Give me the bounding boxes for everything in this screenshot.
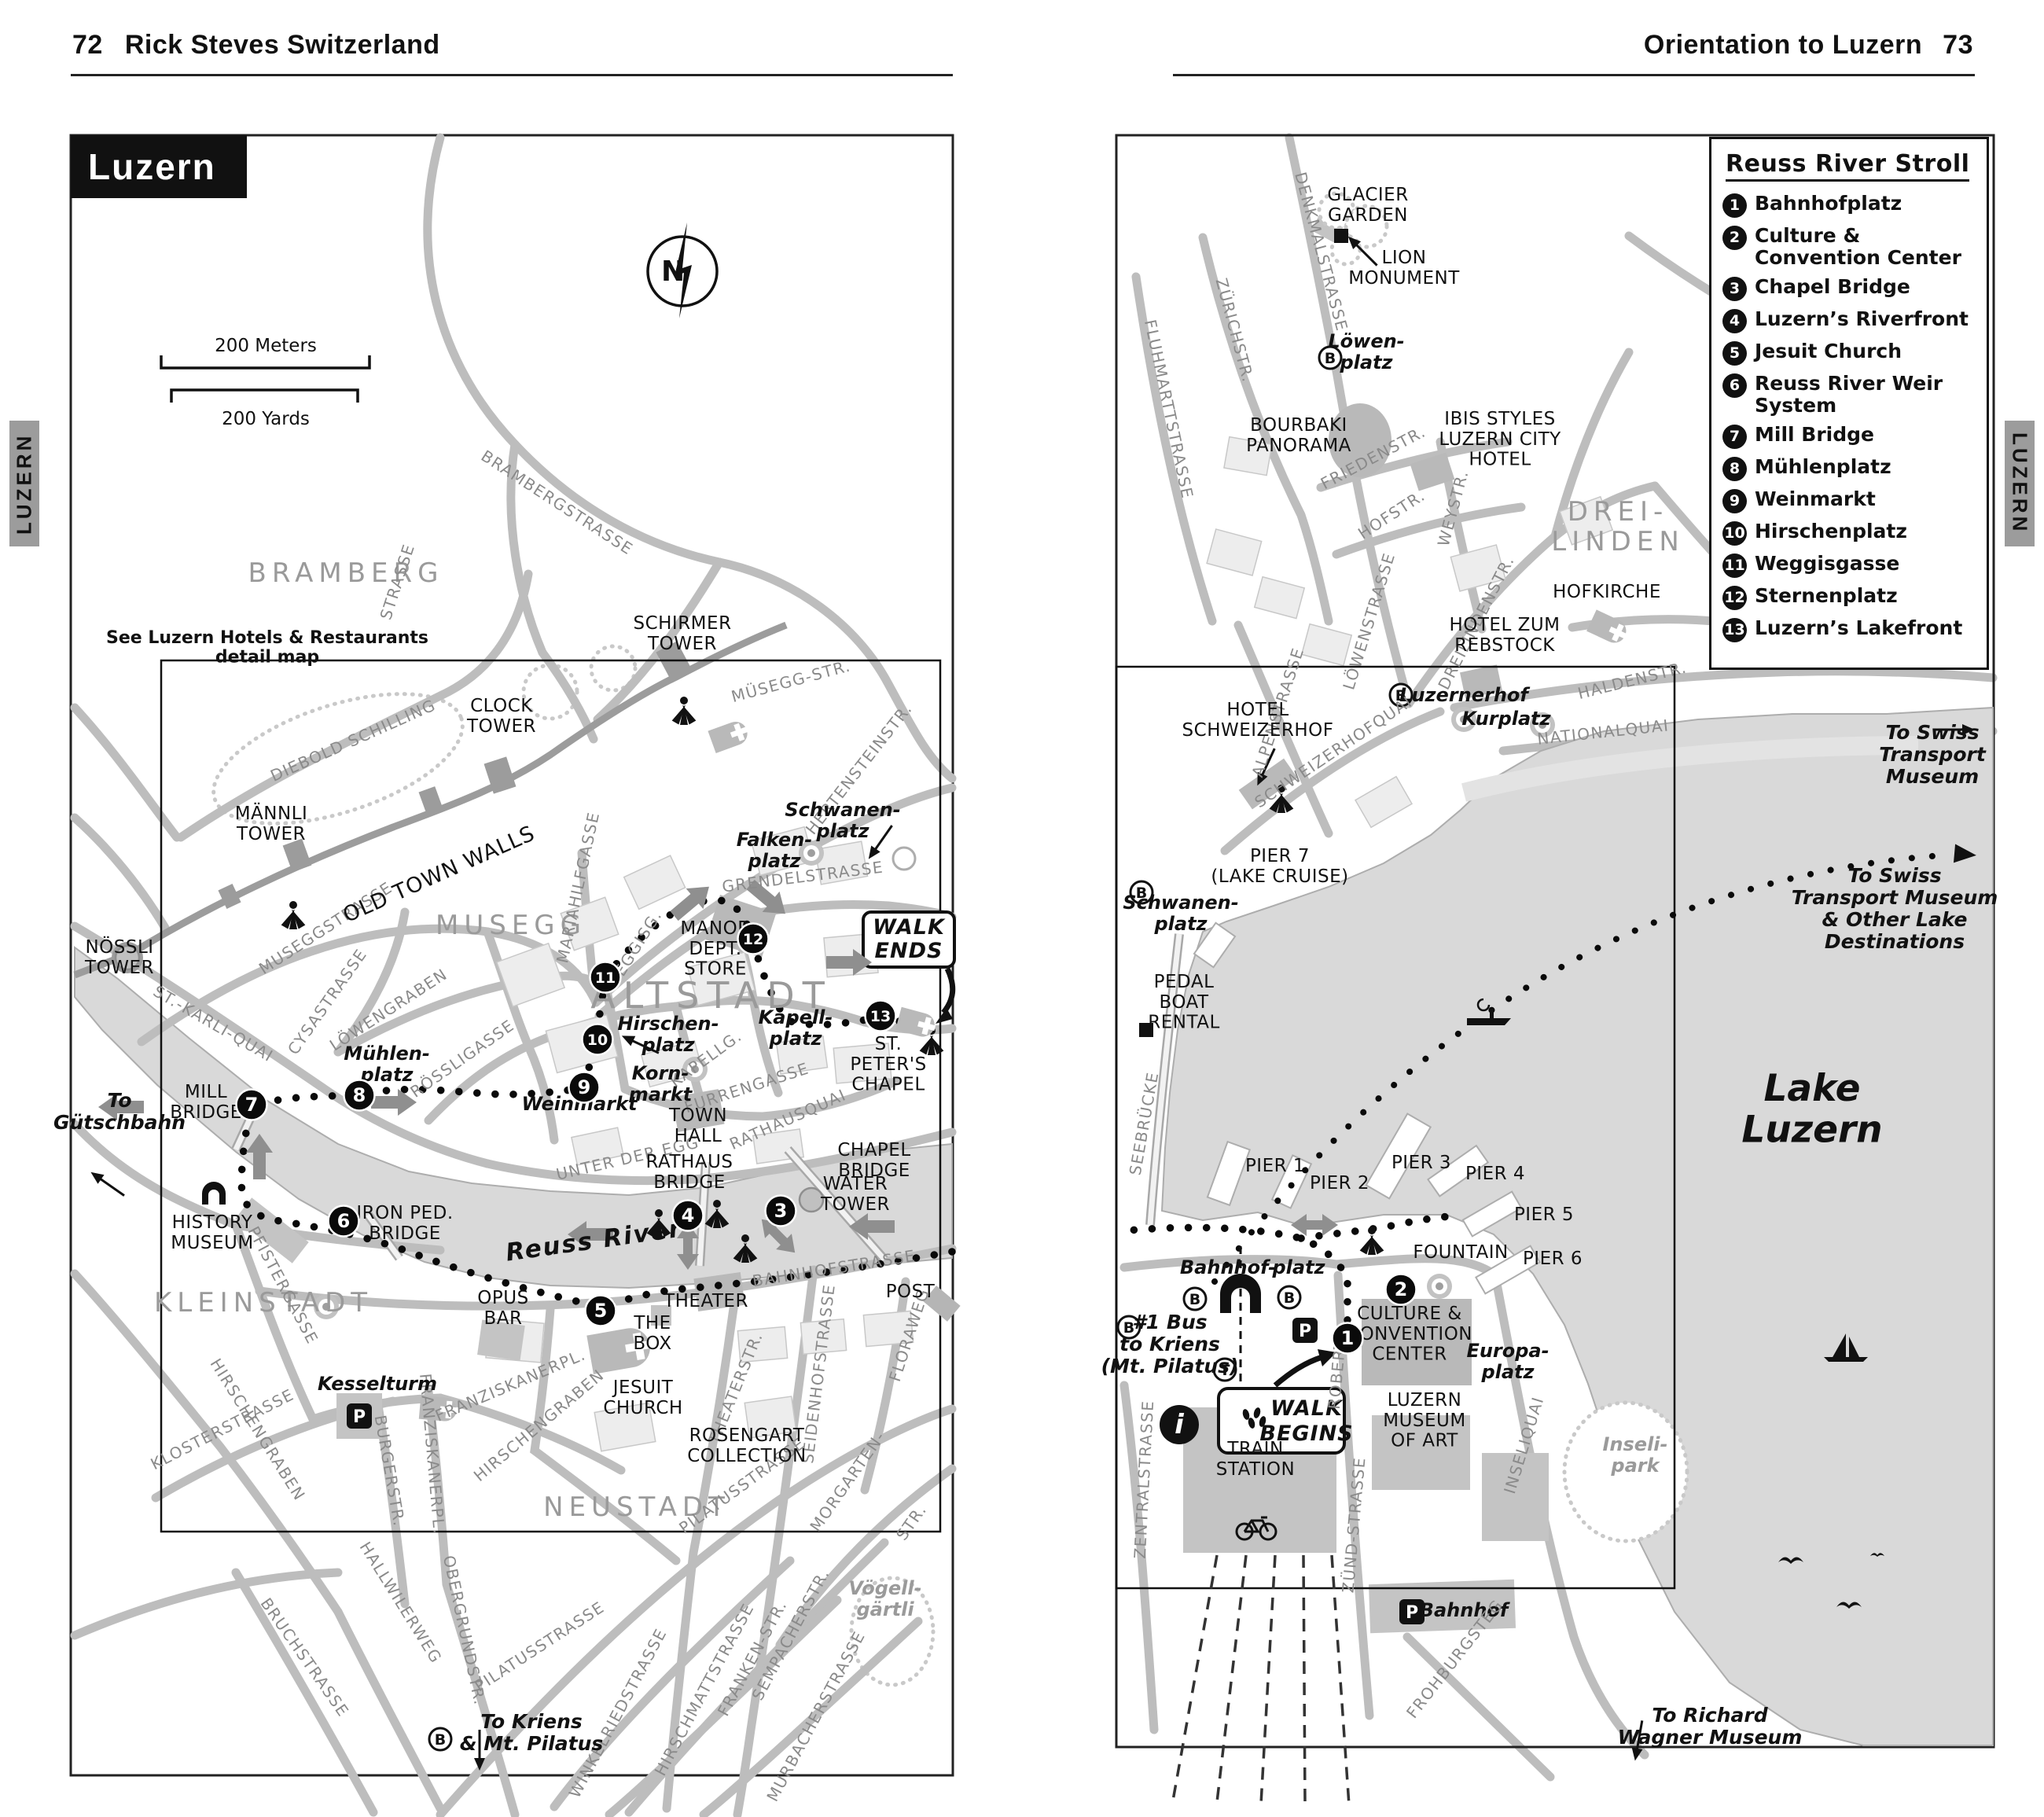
map-label: Inseli-park (1603, 1433, 1668, 1477)
legend-item: 10Hirschenplatz (1722, 520, 1979, 546)
map-label: NÖSSLITOWER (84, 936, 154, 978)
arch-icon (202, 1182, 226, 1205)
legend-item-label: Mill Bridge (1755, 424, 1874, 446)
svg-text:7: 7 (245, 1094, 259, 1116)
svg-text:2: 2 (1395, 1278, 1408, 1300)
scale-meters: 200 Meters (215, 336, 317, 356)
svg-text:B: B (1189, 1291, 1200, 1308)
legend-item-label: Weinmarkt (1755, 488, 1876, 510)
map-label: KLEINSTADT (154, 1287, 373, 1319)
legend-item: 9Weinmarkt (1722, 488, 1979, 513)
sarr-icon (87, 1168, 127, 1200)
map-label: MÜSEGG-STR. (730, 656, 853, 706)
legend-item-number: 5 (1722, 341, 1747, 366)
legend-item-number: 3 (1722, 277, 1747, 301)
map-label: POST (886, 1282, 936, 1302)
bus-stop-icon: B (429, 1728, 451, 1750)
tower-circle-icon (800, 1188, 823, 1212)
legend-item-number: 6 (1722, 373, 1747, 398)
legend-item-label: Luzern’s Riverfront (1755, 308, 1969, 330)
legend-panel: Reuss River Stroll 1Bahnhofplatz2Culture… (1709, 137, 1989, 670)
route-stop: 3 (766, 1196, 796, 1227)
map-label: CLOCKTOWER (466, 696, 536, 737)
parking-icon: P (1292, 1318, 1318, 1343)
svg-text:6: 6 (337, 1210, 351, 1232)
svg-text:9: 9 (578, 1076, 591, 1098)
viewpoint-icon (672, 697, 697, 725)
map-label: To Kriens& Mt. Pilatus (460, 1710, 604, 1755)
legend-item-label: Reuss River Weir System (1755, 373, 1979, 417)
map-label: Kapell-platz (759, 1006, 833, 1050)
walk-ends-line2: ENDS (875, 939, 943, 963)
map-label: ToGütschbahn (53, 1089, 186, 1134)
square-icon (1334, 229, 1348, 243)
map-label: ZÜND-STRASSE (1339, 1456, 1369, 1594)
route-stop: 7 (237, 1090, 267, 1120)
route-stop: 4 (673, 1201, 704, 1231)
map-label: Löwen-platz (1328, 330, 1404, 373)
info-icon: i (1160, 1405, 1199, 1444)
map-label: ZÜRICHSTR. (1211, 276, 1258, 384)
map-label: To SwissTransportMuseum (1879, 721, 1987, 788)
map-label: TRAINSTATION (1216, 1439, 1295, 1480)
route-stop: 6 (329, 1206, 359, 1237)
legend-item: 13Luzern’s Lakefront (1722, 617, 1979, 642)
map-label: IBIS STYLESLUZERN CITYHOTEL (1439, 409, 1561, 470)
map-title: Luzern (88, 146, 216, 187)
svg-text:i: i (1175, 1409, 1185, 1440)
legend-item-number: 4 (1722, 309, 1747, 333)
map-label: WATERTOWER (820, 1174, 890, 1215)
map-label: RATHAUSBRIDGE (645, 1152, 733, 1193)
map-label: PIER 4 (1465, 1164, 1525, 1184)
svg-text:12: 12 (743, 931, 763, 948)
legend-item-number: 11 (1722, 554, 1747, 578)
svg-text:8: 8 (353, 1084, 366, 1106)
map-label: PILATUSSTRASSE (471, 1598, 608, 1696)
map-label: ROSENGARTCOLLECTION (687, 1425, 807, 1466)
legend-title: Reuss River Stroll (1726, 150, 1969, 182)
legend-item-number: 10 (1722, 521, 1747, 546)
legend-item: 7Mill Bridge (1722, 424, 1979, 449)
legend-item-label: Luzern’s Lakefront (1755, 617, 1962, 639)
legend-item: 12Sternenplatz (1722, 585, 1979, 610)
route-stop: 5 (586, 1296, 616, 1326)
old-town-wall (75, 625, 786, 975)
map-label: THEATER (663, 1291, 748, 1311)
svg-text:4: 4 (682, 1205, 695, 1227)
map-label: ZENTRALSTRASSE (1130, 1400, 1158, 1559)
map-label: Luzernerhof (1399, 684, 1530, 706)
map-label: SCHIRMERTOWER (633, 613, 731, 654)
map-label: MÄNNLITOWER (235, 802, 308, 844)
parking-icon: P (347, 1403, 372, 1429)
route-stop: 10 (583, 1024, 613, 1055)
map-label: Bahnhof- (1180, 1256, 1276, 1278)
legend-item-number: 2 (1722, 226, 1747, 250)
viewpoint-icon (281, 901, 306, 929)
map-label: Europa-platz (1466, 1340, 1549, 1383)
map-label: BRAMBERG (248, 557, 444, 589)
map-label: BRAMBERGSTRASSE (478, 447, 637, 559)
svg-text:11: 11 (595, 969, 616, 987)
route-stop: 11 (590, 962, 621, 993)
map-label: PIER 5 (1514, 1205, 1574, 1225)
legend-item-label: Culture & Convention Center (1755, 225, 1979, 269)
svg-text:B: B (435, 1731, 446, 1749)
map-label: MANORDEPT.STORE (680, 918, 750, 980)
svg-text:P: P (353, 1407, 366, 1427)
legend-item-label: Hirschenplatz (1755, 520, 1907, 543)
walk-ends-line1: WALK (873, 915, 946, 940)
legend-list: 1Bahnhofplatz2Culture & Convention Cente… (1722, 193, 1979, 642)
svg-text:3: 3 (774, 1200, 788, 1222)
church-icon (1586, 609, 1630, 646)
map-label: BURGERSTR. (371, 1414, 410, 1528)
legend-item-label: Jesuit Church (1755, 340, 1902, 362)
map-title-box: Luzern (71, 135, 247, 198)
legend-item-number: 9 (1722, 489, 1747, 513)
legend-item: 11Weggisgasse (1722, 553, 1979, 578)
compass-north: N (661, 256, 685, 288)
map-label: PIER 7(LAKE CRUISE) (1211, 846, 1348, 887)
legend-item-label: Sternenplatz (1755, 585, 1898, 607)
legend-item-number: 8 (1722, 457, 1747, 481)
map-label: OPUSBAR (477, 1288, 528, 1329)
route-stop: 12 (738, 924, 769, 954)
legend-item-label: Weggisgasse (1755, 553, 1899, 575)
route-stop: 2 (1386, 1274, 1417, 1305)
legend-item-number: 12 (1722, 586, 1747, 610)
legend-item: 4Luzern’s Riverfront (1722, 308, 1979, 333)
map-label: PIER 1 (1245, 1156, 1305, 1176)
railway-tracks (1173, 1555, 1349, 1805)
legend-item-label: Mühlenplatz (1755, 456, 1891, 478)
route-stop: 8 (344, 1080, 375, 1111)
svg-text:P: P (1406, 1603, 1418, 1623)
circle-plain-icon (893, 848, 915, 870)
viewpoint-icon (1360, 1227, 1384, 1255)
map-label: DREI-LINDEN (1551, 496, 1685, 557)
route-stop: 9 (569, 1072, 600, 1103)
map-label: LUZERNMUSEUMOF ART (1383, 1390, 1466, 1451)
scale-yards: 200 Yards (222, 409, 310, 429)
scale-bar: 200 Meters 200 Yards (161, 336, 369, 429)
map-label: platz (1271, 1256, 1325, 1278)
map-label: BOURBAKIPANORAMA (1246, 415, 1351, 456)
svg-text:P: P (1299, 1322, 1311, 1341)
map-label: PIER 3 (1391, 1153, 1451, 1173)
map-label: HOTELSCHWEIZERHOF (1182, 700, 1334, 741)
map-label: Korn-markt (629, 1062, 693, 1105)
legend-item-label: Chapel Bridge (1755, 276, 1910, 298)
svg-text:B: B (1284, 1289, 1295, 1307)
legend-item: 2Culture & Convention Center (1722, 225, 1979, 269)
compass-rose: N (648, 223, 717, 318)
map-label: IRON PED.BRIDGE (356, 1203, 453, 1244)
route-stop: 13 (866, 1001, 896, 1032)
map-label: TOWNHALL (668, 1105, 727, 1146)
svg-text:5: 5 (594, 1300, 608, 1322)
map-label: HISTORYMUSEUM (171, 1212, 254, 1253)
svg-text:1: 1 (1341, 1327, 1355, 1349)
map-label: PIER 2 (1310, 1173, 1369, 1194)
map-label: HOTEL ZUMREBSTOCK (1449, 615, 1560, 656)
legend-item-number: 13 (1722, 618, 1747, 642)
map-label: Kesselturm (318, 1373, 437, 1395)
church-icon (708, 718, 751, 753)
bus-stop-icon: B (1184, 1288, 1206, 1310)
map-label: FOUNTAIN (1413, 1242, 1508, 1263)
legend-item: 6Reuss River Weir System (1722, 373, 1979, 417)
map-label: ST.PETER'SCHAPEL (850, 1034, 926, 1095)
legend-item: 8Mühlenplatz (1722, 456, 1979, 481)
arrow-icon (371, 1089, 417, 1116)
map-label: THEBOX (633, 1313, 671, 1354)
book-spread: 72Rick Steves Switzerland Orientation to… (0, 0, 2044, 1817)
legend-item: 3Chapel Bridge (1722, 276, 1979, 301)
map-label: JESUITCHURCH (603, 1377, 682, 1418)
route-stop: 1 (1333, 1323, 1363, 1354)
svg-text:B: B (1325, 350, 1336, 367)
legend-item: 1Bahnhofplatz (1722, 193, 1979, 218)
legend-item-number: 7 (1722, 425, 1747, 449)
svg-text:13: 13 (870, 1008, 891, 1025)
map-label: Kurplatz (1461, 708, 1551, 730)
map-label: Falken-platz (737, 829, 813, 872)
legend-item-label: Bahnhofplatz (1755, 193, 1902, 215)
map-label: PIER 6 (1523, 1249, 1583, 1269)
target-icon (1427, 1274, 1452, 1299)
map-label: Vögell-gärtli (848, 1577, 921, 1620)
map-label: HOFKIRCHE (1553, 582, 1661, 602)
bus-stop-icon: B (1278, 1286, 1300, 1308)
map-label: GLACIERGARDEN (1327, 185, 1408, 226)
svg-text:10: 10 (587, 1032, 608, 1049)
legend-item-number: 1 (1722, 193, 1747, 218)
legend-item: 5Jesuit Church (1722, 340, 1979, 366)
